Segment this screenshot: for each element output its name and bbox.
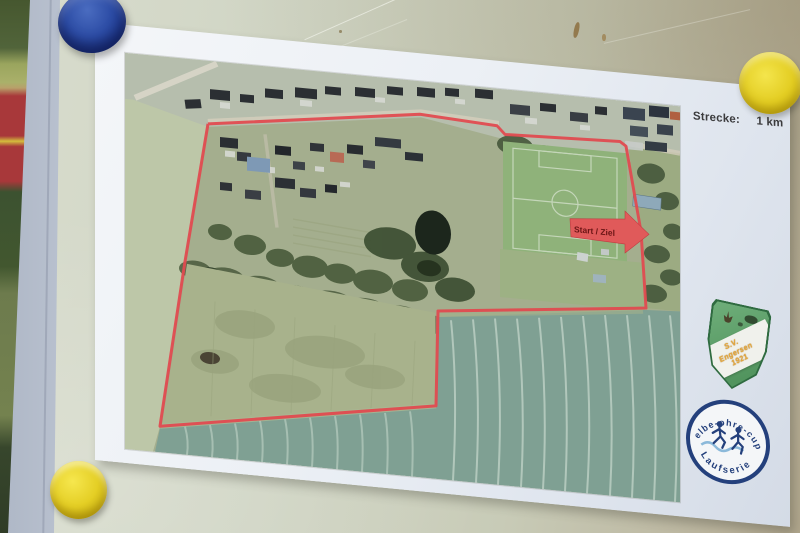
magnet-yellow-top-right (739, 52, 800, 114)
aerial-course-map: Start / Ziel (125, 53, 680, 502)
board-stain (602, 34, 606, 41)
shield-body: S.V. Engersen 1921 (704, 301, 770, 394)
cup-logo: elbe-ohre-cup Laufserie (681, 391, 776, 493)
shield-emblem-icon (723, 310, 733, 324)
distance-label: Strecke: (693, 110, 740, 126)
board-stain (339, 30, 342, 33)
photo-scene: Start / Ziel Strecke: 1 km S.V. Engersen… (0, 0, 800, 533)
cup-logo-graphic: elbe-ohre-cup Laufserie (681, 391, 776, 493)
distance-value: 1 km (756, 115, 783, 129)
frame-seam (42, 0, 51, 533)
club-badge: S.V. Engersen 1921 (702, 298, 772, 395)
course-map-sheet: Start / Ziel Strecke: 1 km S.V. Engersen… (95, 22, 790, 527)
magnet-yellow-bottom-left (50, 461, 107, 519)
shield-emblem-icon (737, 322, 742, 327)
shield-band: S.V. Engersen 1921 (704, 318, 770, 385)
